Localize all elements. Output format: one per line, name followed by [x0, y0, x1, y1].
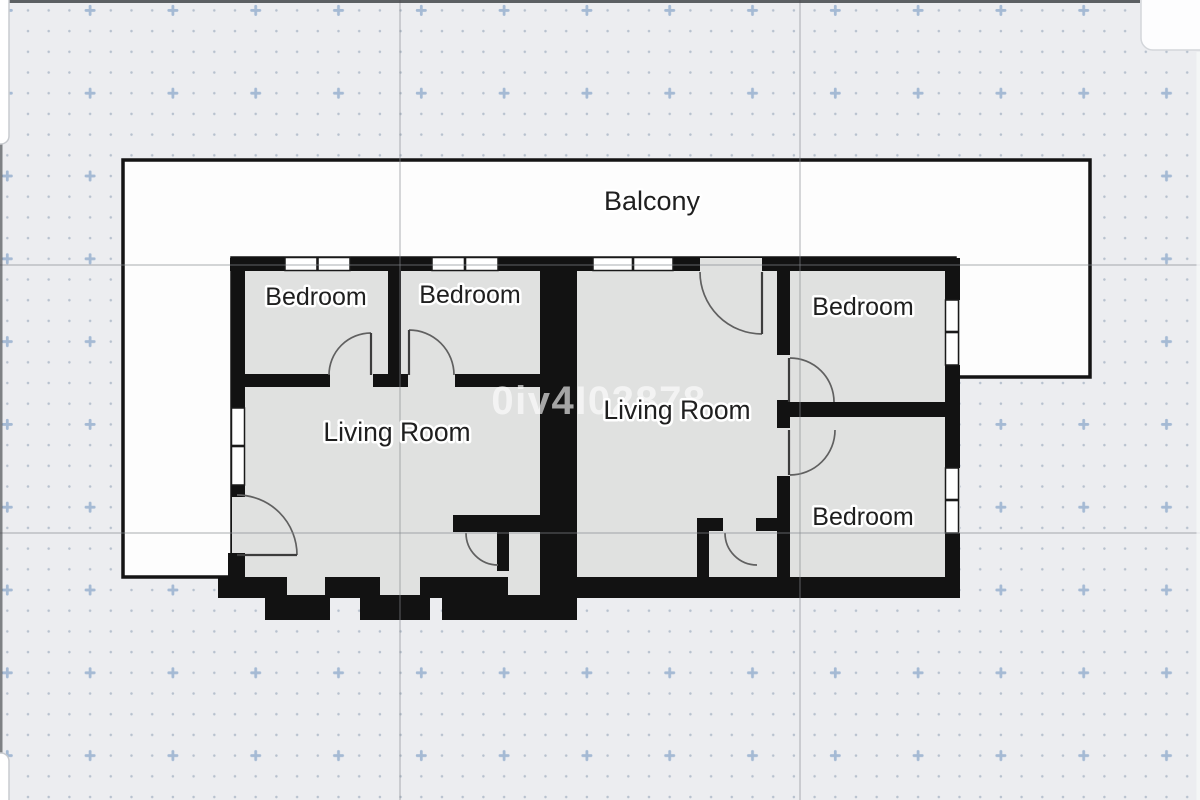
- room-label-bedroom-top-middle[interactable]: Bedroom: [419, 281, 520, 309]
- floorplan-canvas[interactable]: 0iv4I02878 Balcony Bedroom Bedroom Bedro…: [0, 0, 1200, 800]
- window[interactable]: [946, 300, 959, 365]
- room-label-bedroom-bottom-right[interactable]: Bedroom: [812, 503, 913, 531]
- window[interactable]: [593, 258, 673, 271]
- window[interactable]: [232, 408, 245, 485]
- left-panel-sliver-bottom: [0, 753, 9, 800]
- left-panel-sliver-top: [0, 0, 9, 144]
- window[interactable]: [946, 468, 959, 533]
- balcony-label: Balcony: [604, 186, 701, 216]
- room-label-living-room-left[interactable]: Living Room: [323, 417, 470, 447]
- room-label-living-room-right[interactable]: Living Room: [603, 395, 750, 425]
- right-edge-strip: [1197, 52, 1200, 800]
- room-label-bedroom-top-right[interactable]: Bedroom: [812, 293, 913, 321]
- room-label-bedroom-top-left[interactable]: Bedroom: [265, 283, 366, 311]
- window[interactable]: [432, 258, 498, 271]
- window[interactable]: [285, 258, 350, 271]
- top-right-panel-corner: [1141, 0, 1200, 50]
